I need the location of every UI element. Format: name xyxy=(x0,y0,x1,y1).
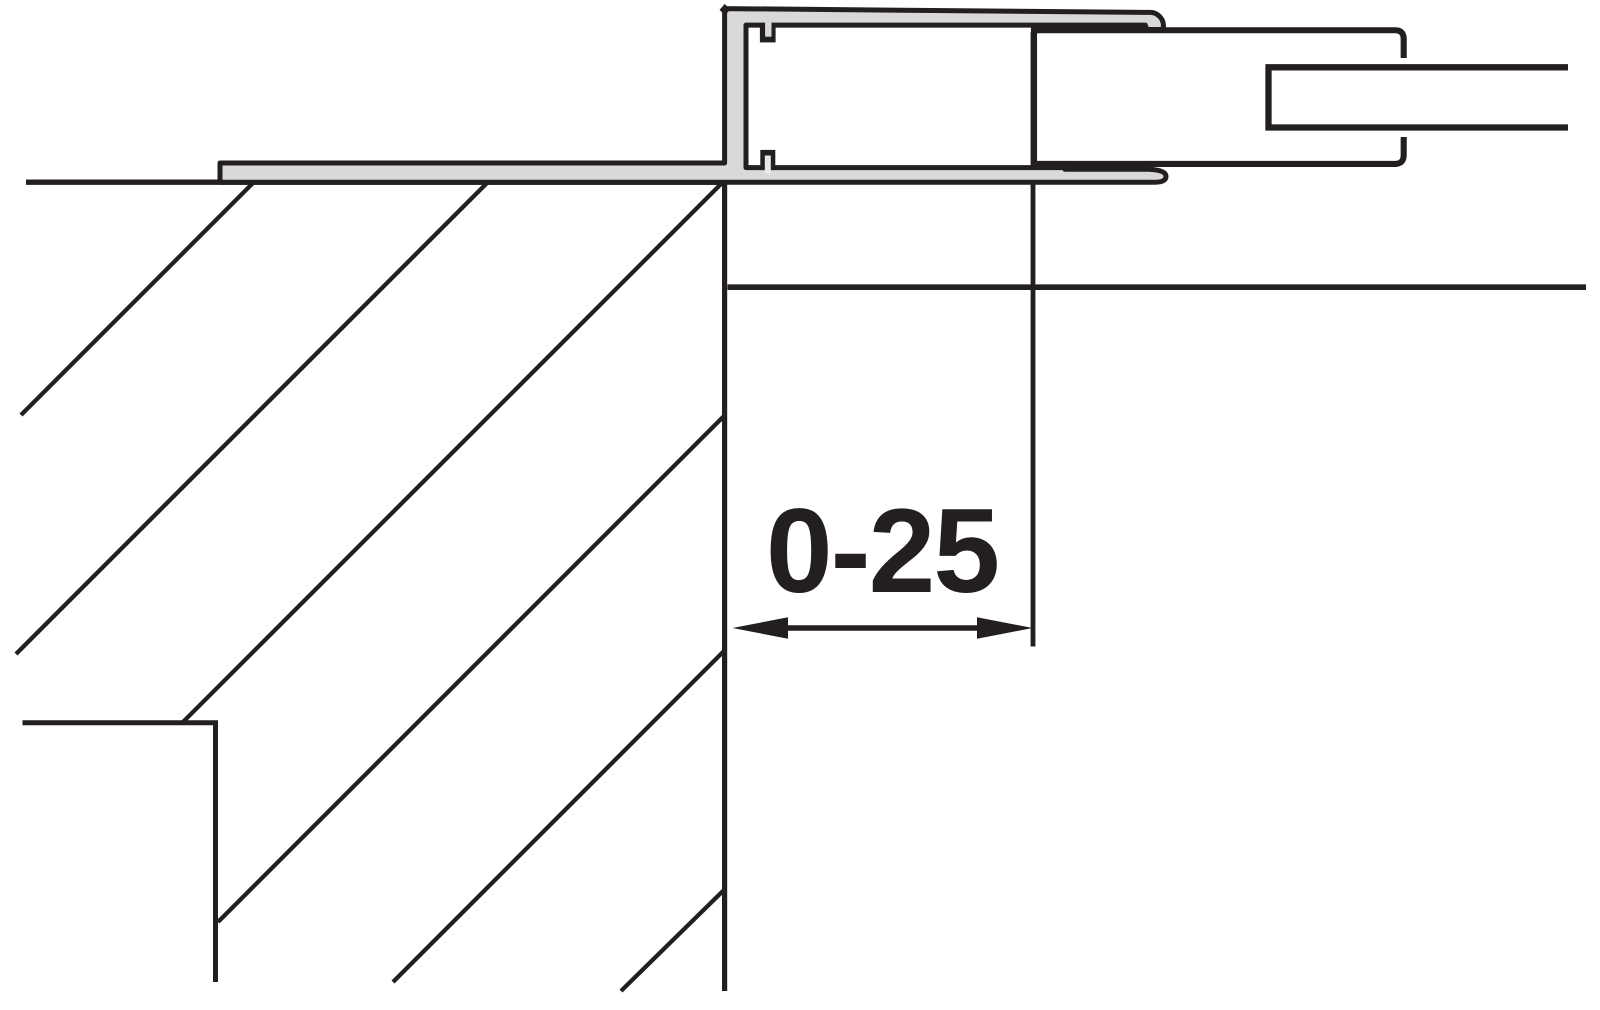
svg-text:0-25: 0-25 xyxy=(766,484,998,618)
